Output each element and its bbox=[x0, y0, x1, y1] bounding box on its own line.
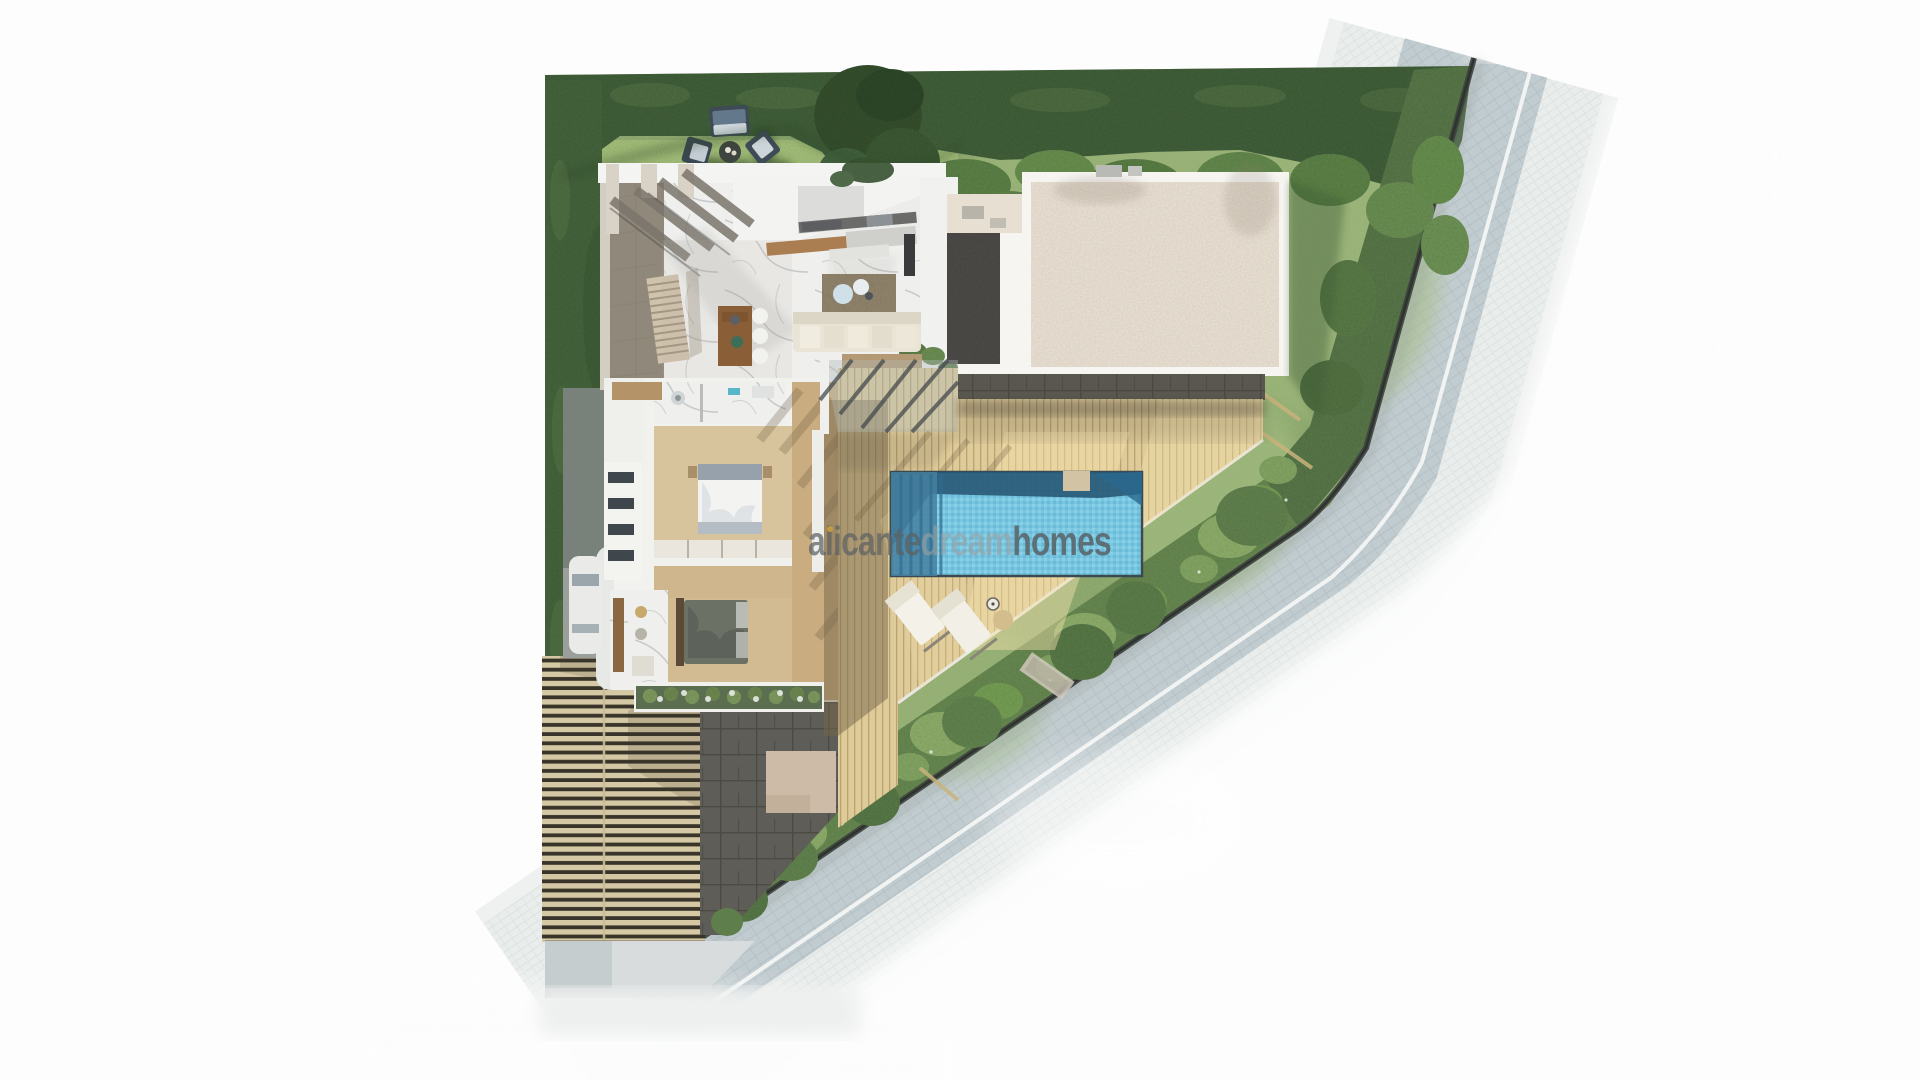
svg-text:alicantedreamhomes: alicantedreamhomes bbox=[808, 518, 1111, 564]
